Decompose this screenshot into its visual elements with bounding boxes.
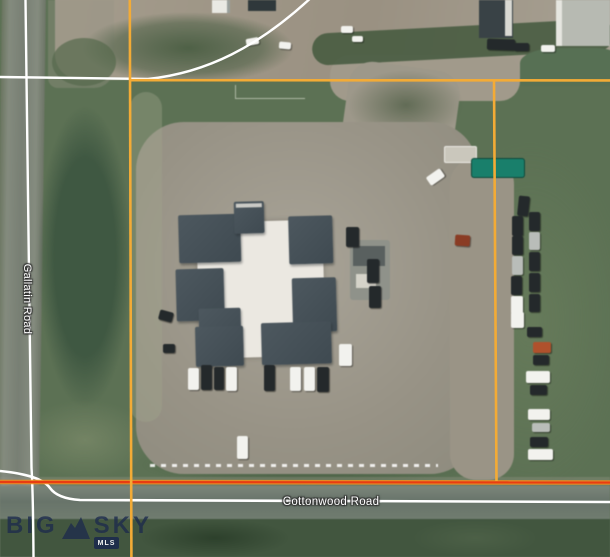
satellite-map[interactable]: Gallatin Road Cottonwood Road BIG SKY ML… — [0, 0, 610, 557]
parcel-boundary-east — [494, 80, 497, 481]
mountain-icon — [61, 516, 91, 539]
parcel-boundary-west — [130, 0, 132, 557]
mls-badge: MLS — [94, 537, 119, 549]
gallatin-road-label: Gallatin Road — [21, 264, 33, 335]
cottonwood-road-label: Cottonwood Road — [283, 496, 380, 508]
access-road-centerline — [0, 0, 315, 79]
map-lines-layer — [0, 0, 610, 557]
section-line — [0, 482, 610, 483]
bigsky-logo: BIG SKY — [6, 512, 152, 540]
logo-text-sky: SKY — [94, 512, 152, 540]
logo-text-big: BIG — [6, 512, 58, 540]
